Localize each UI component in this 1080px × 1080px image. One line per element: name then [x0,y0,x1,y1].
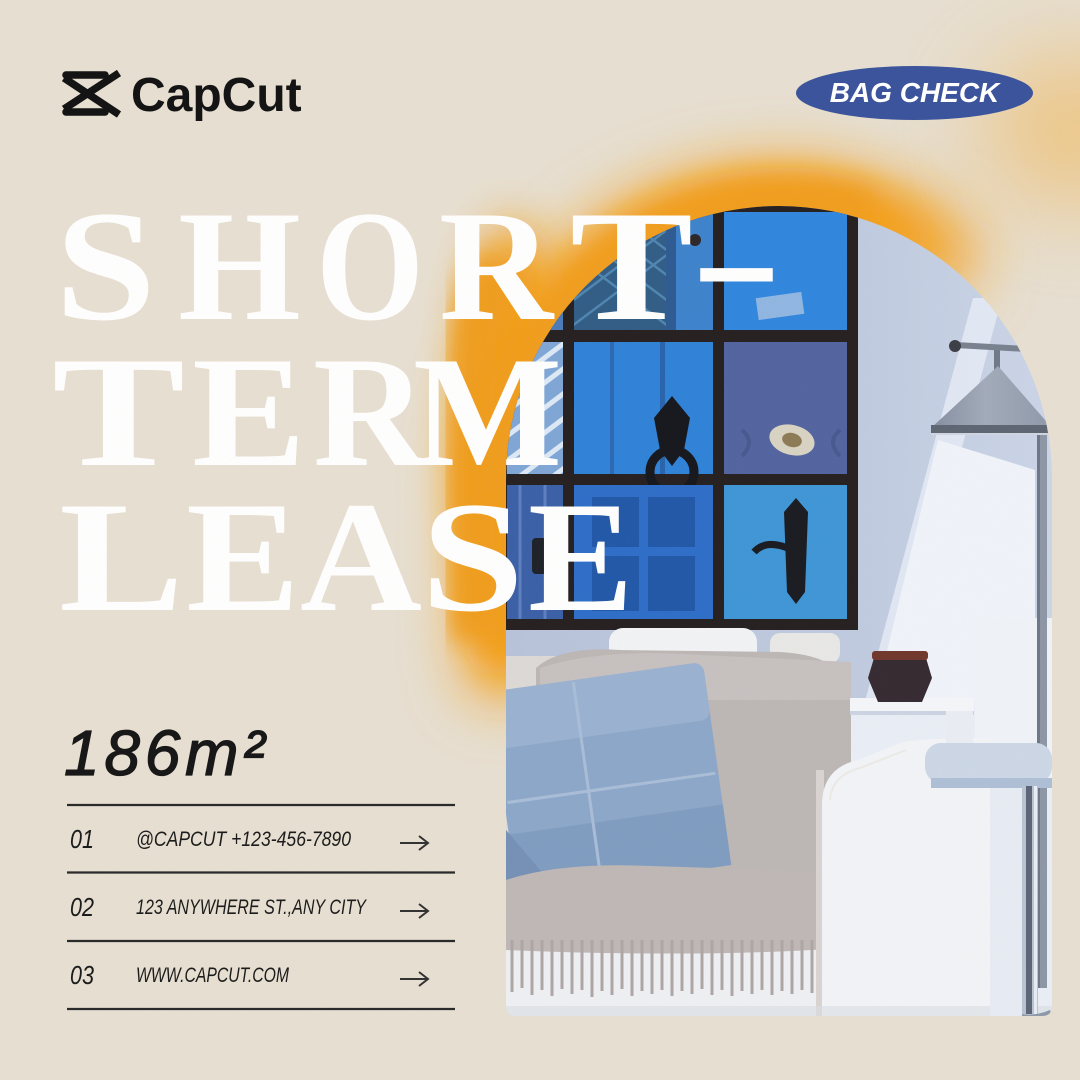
svg-text:123 ANYWHERE ST.,ANY CITY: 123 ANYWHERE ST.,ANY CITY [136,896,368,919]
svg-text:WWW.CAPCUT.COM: WWW.CAPCUT.COM [136,964,289,987]
svg-text:02: 02 [70,892,94,922]
svg-text:03: 03 [70,960,94,990]
svg-text:@CAPCUT +123-456-7890: @CAPCUT +123-456-7890 [136,828,351,851]
svg-text:CapCut: CapCut [131,69,302,122]
svg-text:01: 01 [70,824,94,854]
